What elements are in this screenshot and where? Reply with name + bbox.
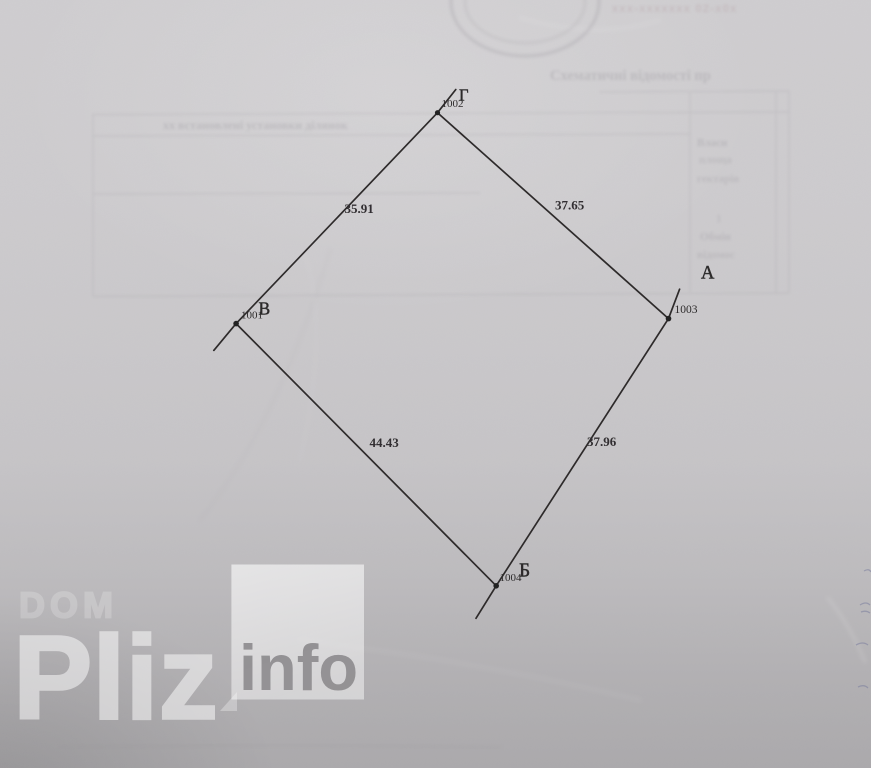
svg-text:1: 1	[716, 213, 722, 225]
svg-text:37.65: 37.65	[555, 198, 585, 213]
svg-text:37.96: 37.96	[587, 434, 617, 449]
svg-text:Власн: Власн	[697, 137, 728, 149]
svg-text:1001: 1001	[241, 310, 263, 322]
svg-text:А: А	[701, 264, 715, 284]
svg-text:1003: 1003	[675, 304, 698, 316]
svg-text:44.43: 44.43	[370, 435, 400, 450]
svg-text:xxx-xxxxxxx 02-x0x: xxx-xxxxxxx 02-x0x	[612, 3, 738, 15]
svg-text:info: info	[239, 631, 358, 704]
svg-text:1002: 1002	[442, 98, 464, 110]
svg-text:1004: 1004	[500, 572, 523, 584]
svg-text:35.91: 35.91	[345, 201, 374, 216]
svg-text:відомос: відомос	[697, 249, 735, 261]
svg-text:Обмін: Обмін	[700, 231, 731, 243]
svg-text:Pliz: Pliz	[13, 612, 218, 745]
svg-text:Схематичні відомості пр: Схематичні відомості пр	[550, 68, 711, 84]
svg-text:гектарів: гектарів	[697, 173, 739, 185]
svg-text:площа: площа	[699, 154, 732, 166]
svg-text:xx встановлені установки ділян: xx встановлені установки ділянок	[163, 118, 348, 132]
